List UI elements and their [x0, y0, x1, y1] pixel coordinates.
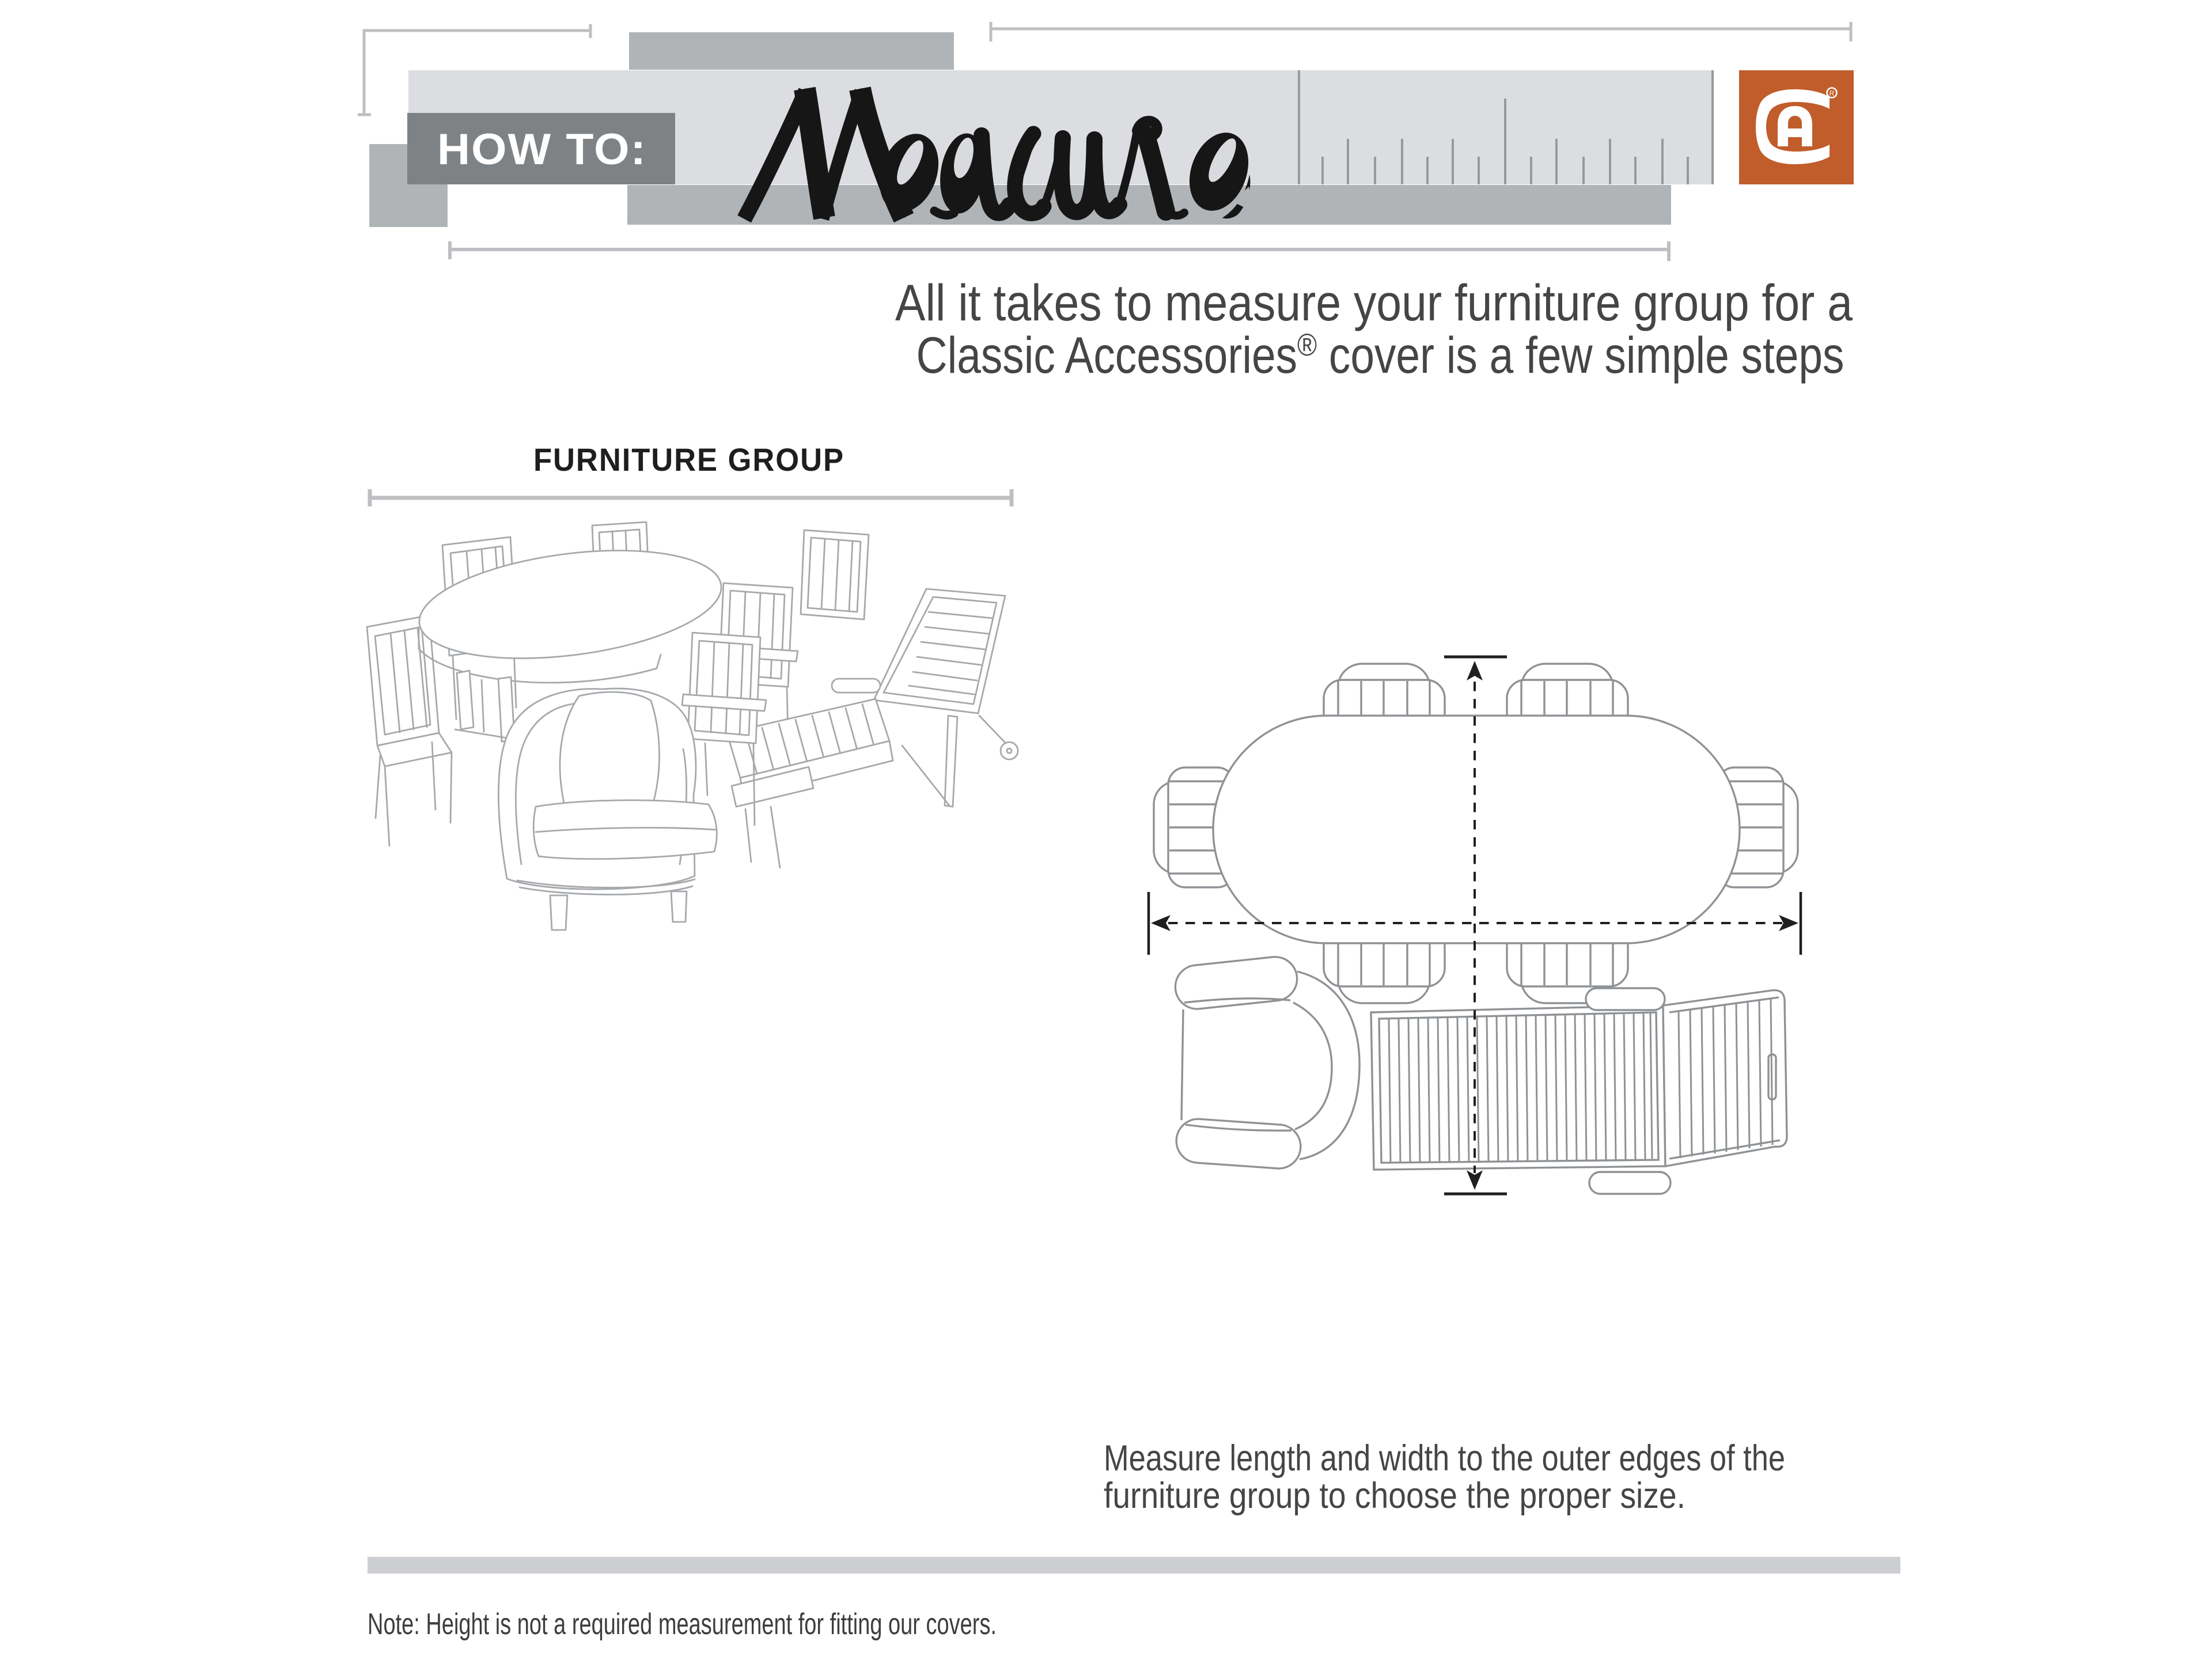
svg-text:FURNITURE GROUP: FURNITURE GROUP — [533, 441, 844, 478]
svg-text:R: R — [1830, 89, 1835, 97]
svg-text:Note: Height is not a required: Note: Height is not a required measureme… — [368, 1608, 997, 1641]
svg-text:Measure length and width to th: Measure length and width to the outer ed… — [1104, 1438, 1785, 1479]
svg-text:furniture group to choose the: furniture group to choose the proper siz… — [1104, 1476, 1685, 1516]
svg-text:All it takes to measure your f: All it takes to measure your furniture g… — [895, 274, 1853, 331]
svg-text:Classic Accessories® cover is: Classic Accessories® cover is a few simp… — [916, 326, 1844, 384]
svg-text:HOW TO:: HOW TO: — [437, 125, 647, 174]
